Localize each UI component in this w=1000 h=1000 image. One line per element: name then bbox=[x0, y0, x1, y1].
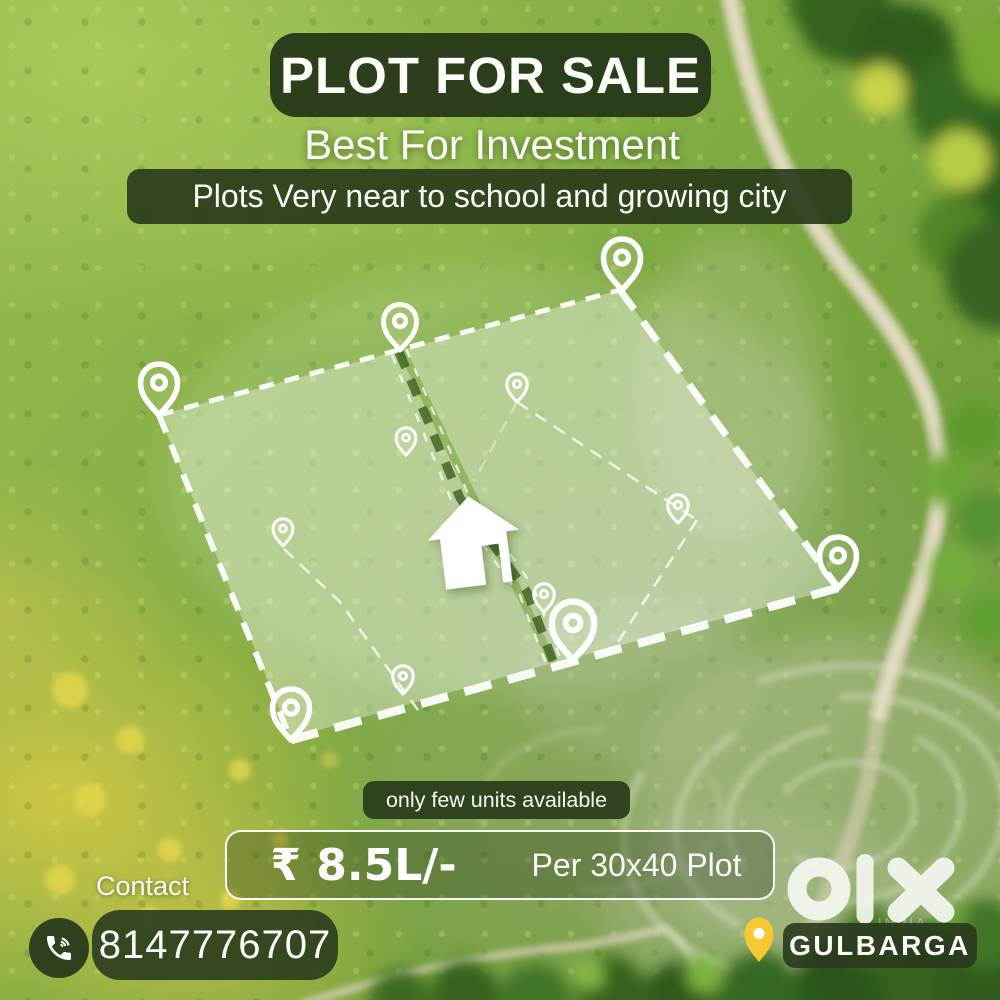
map-pin-outline-icon bbox=[141, 364, 178, 415]
title-text: PLOT FOR SALE bbox=[280, 46, 701, 105]
availability-badge: only few units available bbox=[363, 781, 630, 819]
location-pin-icon bbox=[740, 914, 778, 964]
tagline-text: Plots Very near to school and growing ci… bbox=[192, 178, 786, 215]
tagline-banner: Plots Very near to school and growing ci… bbox=[127, 169, 852, 224]
price-amount: ₹ 8.5L/- bbox=[227, 840, 500, 891]
subtitle-text: Best For Investment bbox=[142, 121, 842, 169]
price-box: ₹ 8.5L/- Per 30x40 Plot bbox=[225, 830, 775, 900]
availability-text: only few units available bbox=[386, 788, 607, 813]
phone-call-icon bbox=[43, 932, 75, 964]
title-banner: PLOT FOR SALE bbox=[270, 33, 711, 117]
phone-number: 8147776707 bbox=[99, 923, 331, 968]
phone-badge bbox=[29, 918, 89, 978]
phone-number-pill: 8147776707 bbox=[92, 910, 338, 980]
poster: PLOT FOR SALE Best For Investment Plots … bbox=[0, 0, 1000, 1000]
contact-label: Contact bbox=[96, 871, 189, 902]
location-badge: GULBARGA bbox=[783, 923, 977, 968]
location-text: GULBARGA bbox=[789, 930, 971, 962]
price-unit: Per 30x40 Plot bbox=[500, 847, 773, 884]
